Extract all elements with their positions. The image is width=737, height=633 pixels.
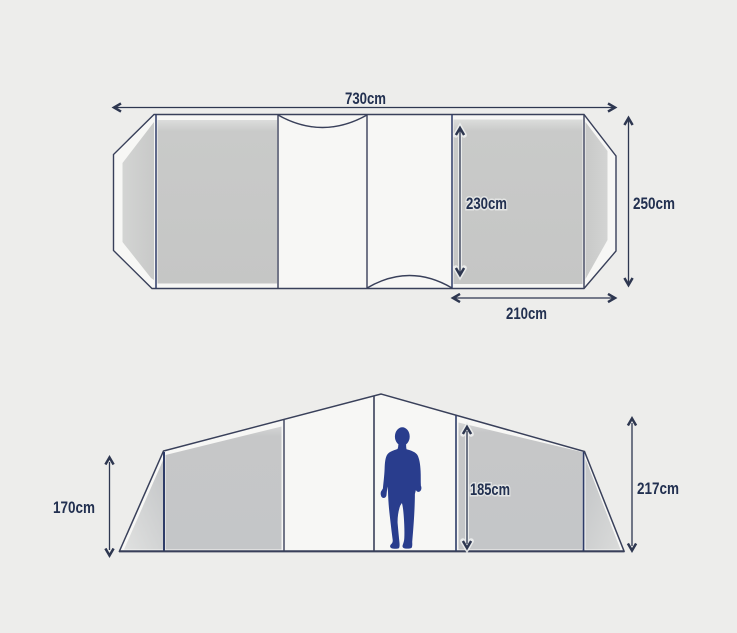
svg-text:217cm: 217cm	[637, 480, 679, 498]
svg-text:210cm: 210cm	[506, 305, 547, 323]
svg-text:730cm: 730cm	[345, 90, 386, 108]
svg-text:230cm: 230cm	[466, 195, 507, 213]
svg-text:185cm: 185cm	[470, 481, 510, 499]
svg-text:250cm: 250cm	[633, 195, 675, 213]
svg-text:170cm: 170cm	[53, 499, 95, 517]
